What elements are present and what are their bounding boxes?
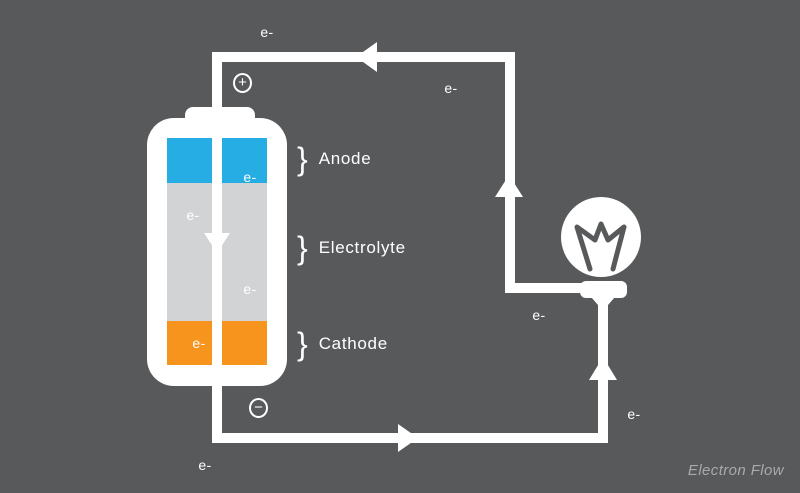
cathode-block-right <box>222 321 267 365</box>
arrow-up-icon <box>589 357 617 380</box>
label-anode: } Anode <box>297 143 371 175</box>
electron-label-cathode: e- <box>192 335 205 351</box>
arrow-right-icon <box>398 424 418 452</box>
bulb-globe <box>561 197 641 277</box>
brace-icon: } <box>297 143 308 175</box>
arrow-left-icon <box>356 42 377 72</box>
arrow-up-icon <box>495 175 523 197</box>
bulb-base <box>580 281 627 298</box>
electron-label-bottom-left: e- <box>198 457 211 473</box>
brace-icon: } <box>297 232 308 264</box>
electrolyte-block-left <box>167 183 212 321</box>
anode-block-left <box>167 138 212 183</box>
electrolyte-block-right <box>222 183 267 321</box>
negative-terminal-icon: − <box>249 398 268 418</box>
electron-label-electrolyte-left: e- <box>186 207 199 223</box>
label-cathode: } Cathode <box>297 328 388 360</box>
diagram-caption: Electron Flow <box>688 462 784 479</box>
electrolyte-label: Electrolyte <box>319 238 406 258</box>
cathode-label: Cathode <box>319 334 388 354</box>
battery <box>147 107 287 386</box>
electron-label-bottom-right: e- <box>627 406 640 422</box>
electron-label-anode: e- <box>243 169 256 185</box>
label-electrolyte: } Electrolyte <box>297 232 406 264</box>
positive-terminal-icon: + <box>233 73 252 93</box>
electron-label-top-wire: e- <box>260 24 273 40</box>
brace-icon: } <box>297 328 308 360</box>
electron-label-right-descent: e- <box>444 80 457 96</box>
bulb-base-tip <box>591 297 615 305</box>
electron-flow-diagram: e- e- e- e- e- e- e- e- e- + − } Anode }… <box>0 0 800 493</box>
electron-label-electrolyte-right: e- <box>243 281 256 297</box>
anode-label: Anode <box>319 149 372 169</box>
electron-label-bulb-left: e- <box>532 307 545 323</box>
